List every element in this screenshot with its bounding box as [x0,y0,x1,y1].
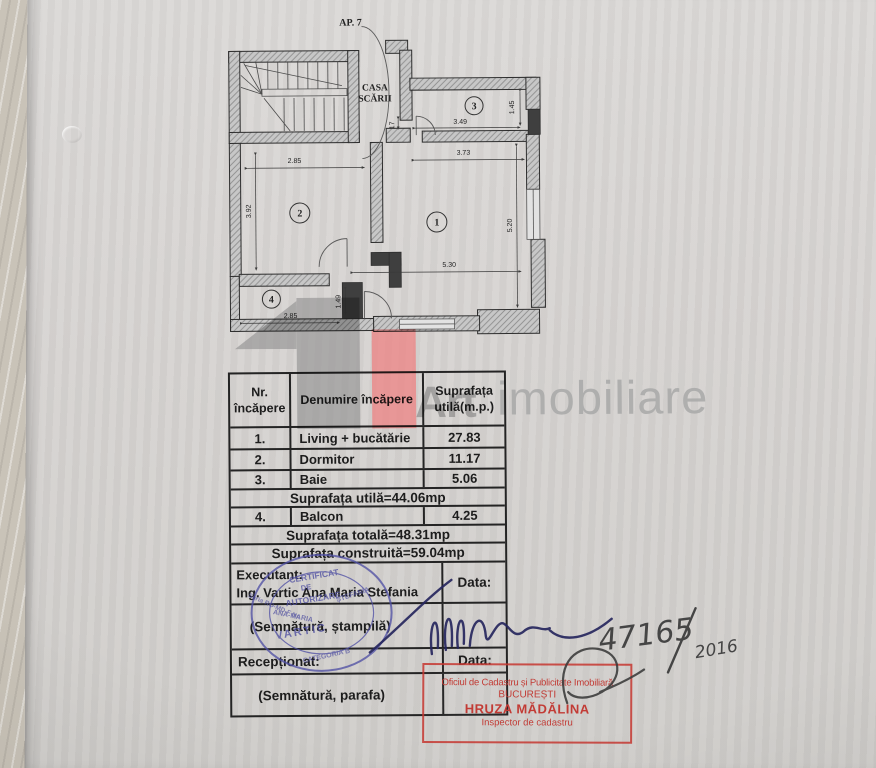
handwritten-slash [668,608,696,672]
room-2-number: 2 [297,208,302,219]
signature-stamp-label: (Semnătură, ștampilă) [250,618,391,634]
signature-stamp-row: (Semnătură, ștampilă) [232,604,506,651]
dim-living-top: 3.73 [457,150,471,157]
cadastre-office-stamp: Oficiul de Cadastru și Publicitate Imobi… [422,663,632,744]
row1-value: 27.83 [424,427,504,448]
signature-area [444,604,506,647]
dim-balcony-width: 2.85 [284,313,298,320]
table-row: 1. Living + bucătărie 27.83 [230,427,504,451]
dim-room2-height: 3.92 [246,204,253,218]
built-row: Suprafața construită=59.04mp [231,544,505,565]
dim-bath-height: 1.45 [509,101,516,115]
header-denumire: Denumire încăpere [291,373,424,426]
dim-living-height: 5.20 [507,219,514,233]
executant-row: Executant: Ing. Vartic Ana Maria Stefani… [231,563,505,606]
table-row: 3. Baie 5.06 [231,470,505,491]
floor-plan-drawing: AP. 7 [215,5,577,356]
subtotal-row: Suprafața utilă=44.06mp [231,489,505,509]
received-label: Recepționat: [238,654,320,670]
room-3-number: 3 [472,101,477,112]
dim-room2-width: 2.85 [288,158,302,165]
watermark-brand-light: imobiliare [497,373,708,421]
handwritten-number: 47165 [596,612,695,659]
built-text: Suprafața construită=59.04mp [231,544,505,563]
total-row: Suprafața totală=48.31mp [231,526,505,546]
room-4-number: 4 [269,295,274,306]
table-header-row: Nr. încăpere Denumire încăpere Suprafața… [230,373,504,429]
scanned-document-photo: AP. 7 [0,0,876,768]
row3-nr: 3. [231,471,292,488]
staircase-symbol [241,62,347,132]
row2-value: 11.17 [424,449,504,469]
table-row: 2. Dormitor 11.17 [230,449,504,472]
apartment-label: AP. 7 [339,18,361,29]
executant-label: Executant: [236,566,303,584]
date-label-1: Data: [443,563,505,602]
header-nr: Nr. încăpere [230,374,291,426]
dim-entry: 17 [389,121,396,129]
handwritten-year: 2016 [693,636,739,663]
stamp-office-name: Oficiul de Cadastru și Publicitate Imobi… [441,677,613,689]
stamp-city: BUCUREȘTI [498,689,556,702]
dim-living-width: 5.30 [442,262,456,269]
row2-nr: 2. [230,450,291,469]
table-row-balcon: 4. Balcon 4.25 [231,507,505,528]
executant-name: Ing. Vartic Ana Maria Stefania [236,583,418,602]
total-text: Suprafața totală=48.31mp [231,526,505,544]
room-1-number: 1 [434,217,439,228]
staircase-label-1: CASA [362,83,388,93]
subtotal-text: Suprafața utilă=44.06mp [231,489,505,507]
stamp-inspector-title: Inspector de cadastru [481,718,572,730]
executant-cell: Executant: Ing. Vartic Ana Maria Stefani… [231,563,443,603]
row1-name: Living + bucătărie [291,427,424,448]
row4-nr: 4. [231,508,292,525]
row1-nr: 1. [230,428,291,448]
stamp-inspector-name: HRUZA MĂDĂLINA [465,701,590,718]
staircase-label-2: SCĂRII [358,92,392,104]
row2-name: Dormitor [291,449,424,469]
header-suprafata: Suprafața utilă(m.p.) [424,373,504,426]
signature-seal-label: (Semnătură, parafa) [258,687,385,703]
row4-name: Balcon [292,507,425,525]
dim-bath-width: 3.49 [453,119,467,126]
row3-value: 5.06 [425,470,505,488]
dim-balcony-height: 1.49 [335,295,342,309]
row3-name: Baie [292,470,425,488]
document-content: AP. 7 [0,0,876,768]
window-symbols [399,189,541,329]
row4-value: 4.25 [425,507,505,525]
